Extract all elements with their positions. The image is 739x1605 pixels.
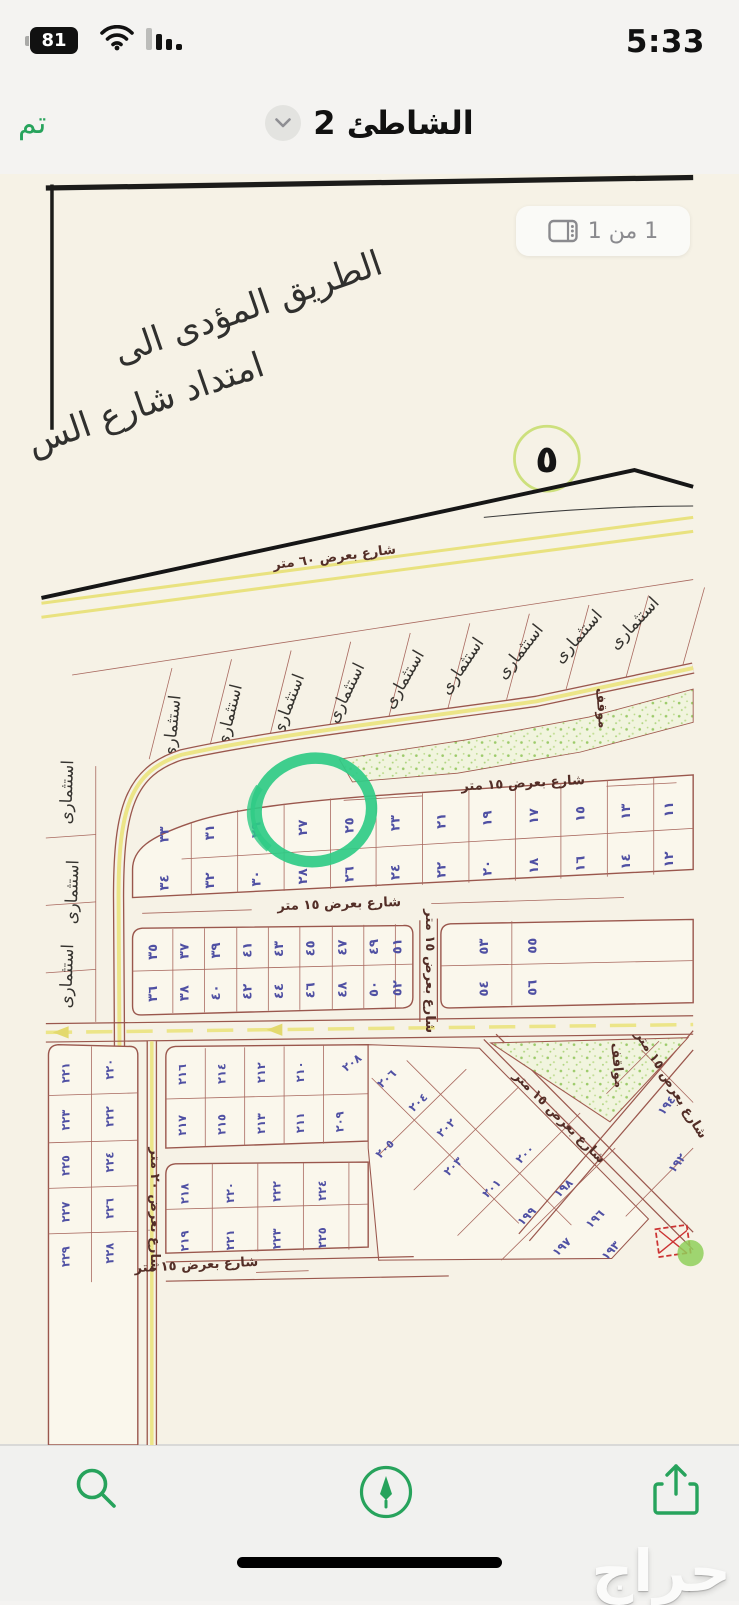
plot-number: ٢٥ (342, 817, 357, 833)
sheet-number: ٥ (535, 438, 559, 483)
plot-number: ٤٣ (272, 941, 287, 957)
plot-number: ١٣ (619, 804, 634, 820)
plot-number: ٢٠٩ (333, 1111, 347, 1132)
plot-number: ٢٢١ (58, 1062, 72, 1083)
status-bar: 81 5:33 (0, 0, 739, 96)
plot-number: ٢١٣ (254, 1113, 268, 1134)
plot-number: ٣٤ (157, 875, 172, 891)
plot-number: ١٦ (574, 856, 589, 872)
title-wrap: الشاطئ 2 (0, 104, 739, 142)
plot-number: ٢٠ (481, 860, 496, 876)
plot-number: ٤٦ (304, 982, 319, 998)
plot-number: ٣٧ (178, 943, 193, 959)
plot-number: ٣٢ (203, 873, 218, 889)
search-icon[interactable] (72, 1464, 120, 1512)
plot-number: ٢٢٣ (270, 1228, 284, 1249)
markup-icon[interactable] (358, 1464, 414, 1520)
plot-number: ٢٨ (296, 868, 311, 884)
plot-number: ١١ (662, 801, 677, 817)
plot-number: ٢٣ (389, 815, 404, 831)
plot-number: ٢٢ (434, 862, 449, 878)
plot-block (166, 1162, 368, 1253)
plot-number: ١٧ (527, 808, 542, 824)
plot-number: ٤٨ (335, 982, 350, 998)
road-60m-edge (41, 531, 693, 617)
plot-number: ٢٢٧ (58, 1202, 72, 1223)
plot-number: ١٢ (662, 852, 677, 868)
investment-label: استثمارى (56, 944, 77, 1009)
street-label: شارع بعرض ٢٠ متر (147, 1146, 162, 1271)
investment-label: استثمارى (550, 606, 607, 667)
plot-number: ٢٤ (389, 864, 404, 880)
plot-number: ٢٢٢ (102, 1106, 116, 1127)
plot-number: ٣٩ (209, 942, 224, 958)
investment-label: استثمارى (61, 860, 82, 925)
boundary-line (41, 470, 693, 598)
page-indicator-label: 1 من 1 (588, 219, 659, 244)
plot-number: ٢٢٤ (315, 1180, 329, 1201)
battery-percent: 81 (30, 27, 78, 54)
plot-number: ٢١٠ (293, 1061, 307, 1082)
street-label: شارع بعرض ٦٠ متر (271, 542, 397, 573)
plot-number: ٢١٥ (214, 1114, 228, 1135)
plot-number: ٢٢٨ (102, 1243, 116, 1264)
investment-label: استثمارى (379, 647, 428, 712)
clock: 5:33 (626, 24, 705, 60)
plot-number: ٢١٤ (214, 1063, 228, 1084)
plot-number: ٥٢ (390, 980, 405, 996)
plot-number: ٥٠ (367, 981, 382, 997)
plot-number: ٣٣ (157, 826, 172, 842)
plot-number: ٢١١ (293, 1112, 307, 1133)
plot-number: ٢١٢ (254, 1062, 268, 1083)
plot-number: ٢١٦ (175, 1064, 189, 1085)
plot-number: ٢١٩ (178, 1230, 192, 1251)
investment-label: استثمارى (436, 634, 488, 698)
page-thumbnail-icon (548, 219, 578, 243)
strip-top-line (72, 580, 693, 675)
plot-number: ٣٥ (146, 944, 161, 960)
plot-number: ٢١٧ (175, 1115, 189, 1136)
page-border-top (46, 178, 693, 189)
plot-number: ١٩ (481, 811, 496, 827)
plot-number: ٤٢ (241, 984, 256, 1000)
collector-road (46, 1016, 693, 1042)
street-label: شارع بعرض ١٥ متر (276, 895, 401, 914)
plot-number: ٢١٨ (178, 1183, 192, 1204)
plot-number: ٣٠ (249, 870, 264, 886)
plot-number: ٥١ (390, 938, 405, 954)
plot-number: ١٩٢ (665, 1151, 689, 1176)
plot-number: ٤١ (241, 942, 256, 958)
plot-number: ٢٢٥ (315, 1227, 329, 1248)
plot-number: ٣٦ (146, 986, 161, 1002)
plot-number: ٣٨ (178, 985, 193, 1001)
plot-number: ٢٢٩ (58, 1246, 72, 1267)
plot-number: ٢٢٤ (102, 1152, 116, 1173)
nav-bar: تم الشاطئ 2 (0, 96, 739, 174)
watermark: حراج (591, 1537, 731, 1605)
left-cells-line (46, 834, 96, 838)
investment-label: استثمارى (323, 660, 368, 726)
plot-number: ٥٥ (525, 938, 540, 954)
plot-number: ٤٩ (367, 939, 382, 955)
plot-number: ٢١ (434, 813, 449, 829)
plot-number: ١٤ (619, 854, 634, 870)
plot-number: ٣١ (203, 824, 218, 840)
plot-number: ١٨ (527, 858, 542, 874)
home-indicator[interactable] (237, 1557, 502, 1568)
plot-number: ٥٤ (477, 981, 492, 997)
plot-number: ٢٢٠ (223, 1182, 237, 1203)
title-menu-button[interactable] (265, 105, 301, 141)
page-indicator: 1 من 1 (516, 206, 690, 256)
investment-label: استثمارى (492, 620, 547, 682)
chevron-down-icon (275, 118, 291, 128)
plot-number: ٢٦ (342, 866, 357, 882)
plot-number: ٢٢٣ (58, 1110, 72, 1131)
plot-number: ٤٤ (272, 983, 287, 999)
plot-number: ١٥ (574, 806, 589, 822)
plot-number: ٥٦ (525, 980, 540, 996)
battery-icon: 81 (30, 27, 90, 54)
document-title: الشاطئ 2 (313, 104, 473, 142)
plot-number: ٢٢٦ (102, 1198, 116, 1219)
plot-block (48, 1045, 137, 1445)
plot-number: ٤٠ (209, 984, 224, 1000)
investment-label: استثمارى (56, 760, 77, 825)
plot-number: ٤٥ (304, 940, 319, 956)
cellular-icon (146, 27, 190, 51)
parking-label: موقف (592, 687, 610, 729)
plot-number: ٥٣ (477, 939, 492, 955)
plot-number: ٢٢٠ (102, 1059, 116, 1080)
investment-label: استثمارى (605, 593, 663, 653)
map-drawing: الطريق المؤدى الى امتداد شارع الس ٥ استث… (0, 174, 739, 1445)
plot-number: ٢٧ (296, 820, 311, 836)
street-label: شارع بعرض ١٥ متر (422, 908, 437, 1033)
plot-number: ٢٢٢ (270, 1181, 284, 1202)
boundary-thin-line (484, 506, 693, 517)
plot-number: ٢٢١ (223, 1229, 237, 1250)
plot-number: ٤٧ (335, 940, 350, 956)
document-page[interactable]: الطريق المؤدى الى امتداد شارع الس ٥ استث… (0, 174, 739, 1445)
investment-labels-left: استثمارىاستثمارىاستثمارى (56, 760, 82, 1009)
share-icon[interactable] (652, 1464, 700, 1516)
wifi-icon (100, 25, 134, 51)
plot-number: ٢٢٥ (58, 1155, 72, 1176)
